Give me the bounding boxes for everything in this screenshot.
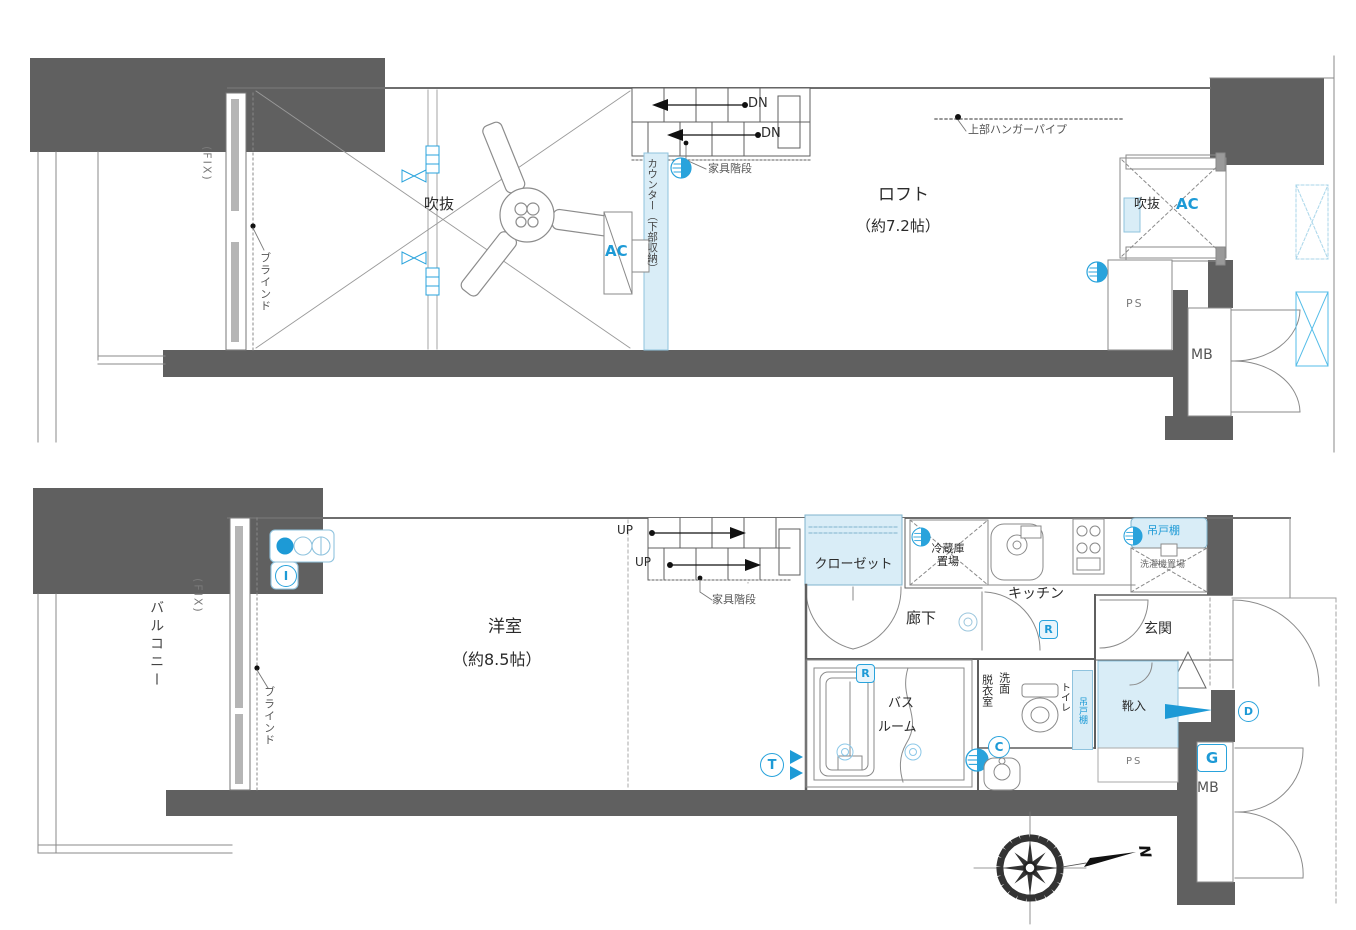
western-room-size-label: （約8.5帖）	[452, 651, 541, 669]
ac-unit-label: AC	[605, 243, 628, 260]
r-badge-bath: R	[856, 664, 875, 683]
balcony-label: バルコニー	[148, 600, 164, 690]
compass-north-label: N	[1135, 844, 1154, 859]
kitchen-label: キッチン	[1008, 586, 1064, 602]
loft-size-label: （約7.2帖）	[856, 218, 940, 235]
toilet-hanging-cupboard-label: 吊戸棚	[1076, 697, 1089, 724]
entrance-label: 玄関	[1144, 621, 1172, 637]
fridge-space-label: 冷蔵庫置場	[916, 543, 980, 568]
upper-blind-label: ブラインド	[258, 252, 271, 312]
washer-space-label: 洗濯機置場	[1140, 560, 1185, 570]
stairs-down-label-1: DN	[748, 97, 768, 112]
hallway-label: 廊下	[906, 610, 936, 627]
washing-room-label: 洗面	[997, 672, 1010, 694]
lower-blind-label: ブラインド	[262, 686, 275, 746]
stairs-up-label-1: UP	[617, 524, 633, 538]
gas-meter-badge: G	[1197, 744, 1227, 772]
r-badge-kitchen: R	[1039, 620, 1058, 639]
c-badge: C	[988, 736, 1010, 758]
toilet-hanging-cupboard: 吊戸棚	[1072, 670, 1093, 750]
stairs-down-label-2: DN	[761, 127, 781, 142]
i-badge: I	[275, 565, 297, 587]
upper-ps-label: PS	[1126, 298, 1144, 311]
upper-mb-label: MB	[1191, 347, 1213, 363]
lower-mb-label: MB	[1197, 780, 1219, 796]
small-void-ac-label: AC	[1176, 196, 1199, 213]
toilet-label: トイレ	[1058, 682, 1070, 712]
loft-name-label: ロフト	[878, 186, 929, 206]
d-badge: D	[1238, 701, 1259, 722]
shoe-box-label: 靴入	[1122, 700, 1146, 714]
upper-furniture-stairs-label: 家具階段	[708, 163, 752, 176]
compass-icon	[974, 812, 1136, 924]
lower-fix-label: (FIX)	[191, 578, 204, 614]
upper-fix-label: (FIX)	[200, 146, 213, 182]
stairs-up-label-2: UP	[635, 556, 651, 570]
lower-ps-label: PS	[1126, 756, 1142, 768]
hanger-pipe-label: 上部ハンガーパイプ	[968, 124, 1067, 137]
hanging-cupboard-label: 吊戸棚	[1147, 525, 1180, 538]
counter-storage-label: カウンター（下部収納）	[646, 158, 658, 274]
lower-furniture-stairs-label: 家具階段	[712, 594, 756, 607]
floorplan-page: (FIX) ブラインド 吹抜 DN DN 家具階段 カウンター（下部収納） AC…	[0, 0, 1356, 930]
upper-floor-linework	[30, 56, 1334, 452]
small-void-label: 吹抜	[1134, 198, 1160, 213]
ceiling-fan-icon	[459, 120, 626, 298]
t-badge: T	[760, 753, 784, 777]
bathroom-label-line1: バス	[888, 697, 914, 712]
floorplan-linework	[0, 0, 1356, 930]
void-label: 吹抜	[424, 196, 454, 213]
bathroom-label-line2: ルーム	[878, 721, 917, 736]
dressing-room-label: 脱衣室	[980, 674, 993, 707]
closet-label: クローゼット	[806, 558, 901, 573]
western-room-name-label: 洋室	[488, 618, 522, 638]
